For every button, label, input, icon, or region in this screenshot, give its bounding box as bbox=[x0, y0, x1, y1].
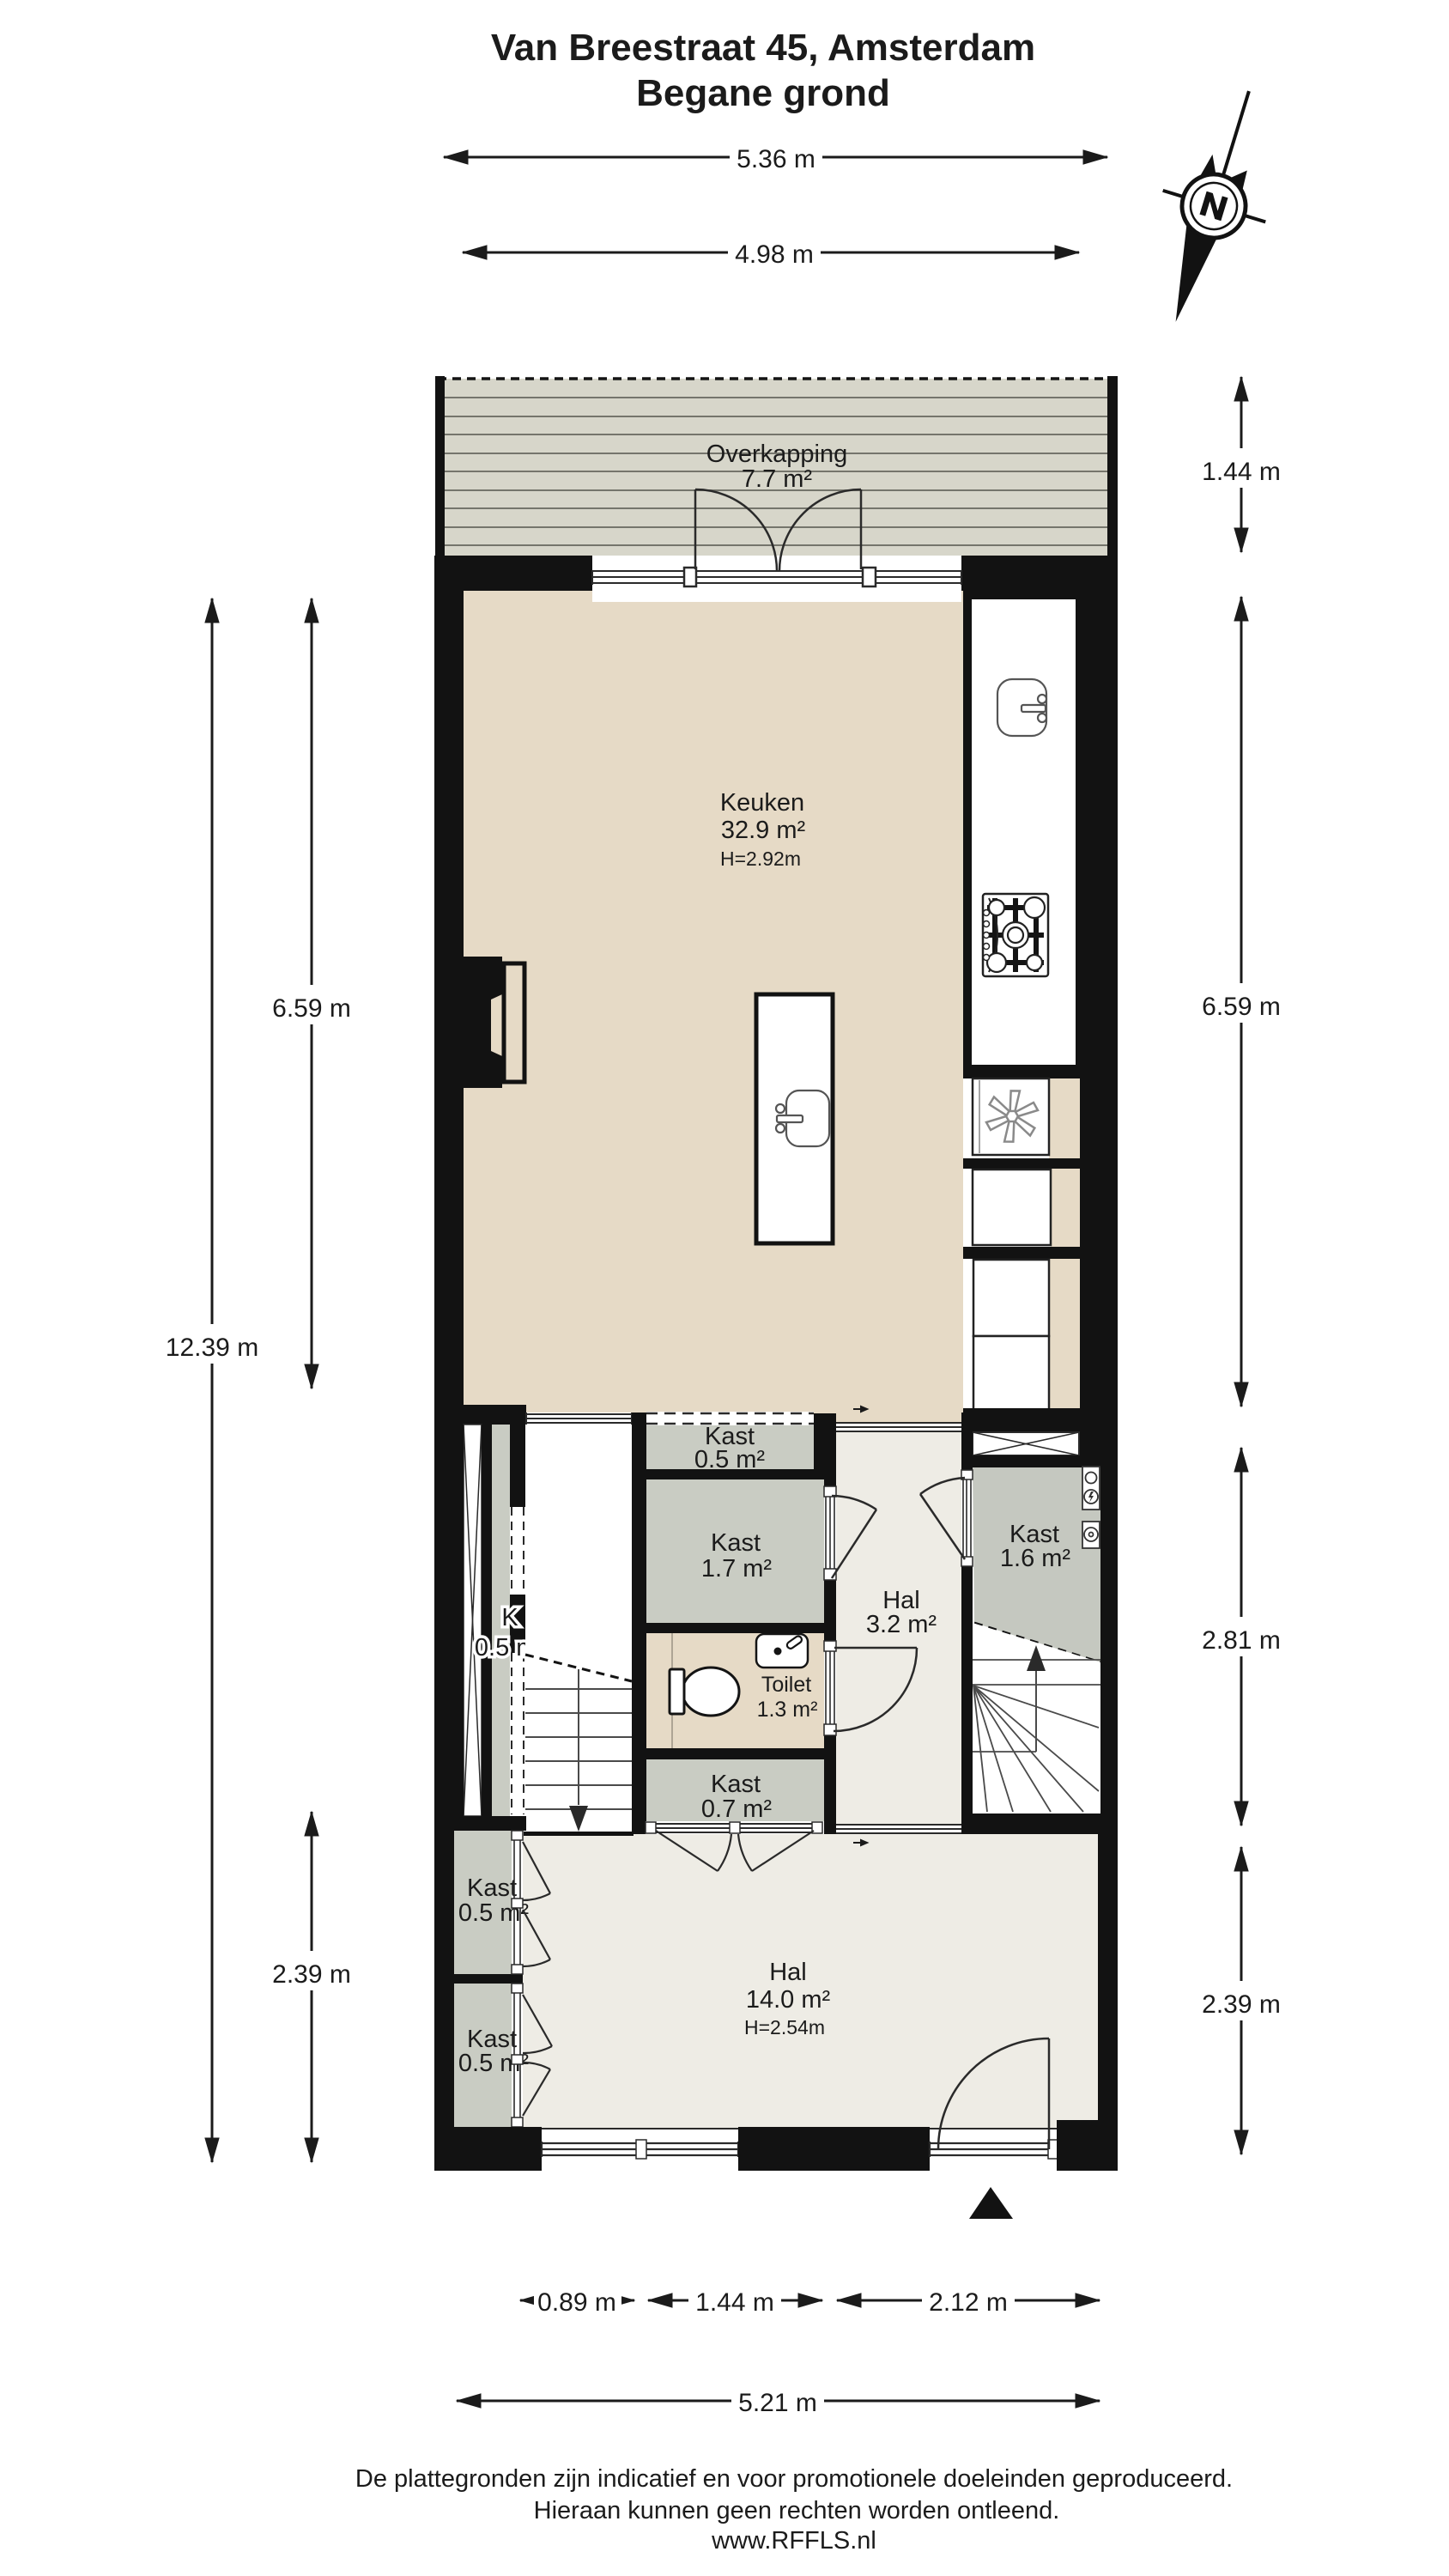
svg-text:2.39 m: 2.39 m bbox=[1202, 1990, 1281, 2019]
svg-text:1.7 m²: 1.7 m² bbox=[701, 1555, 773, 1583]
svg-text:K: K bbox=[501, 1604, 518, 1631]
svg-text:5.21 m: 5.21 m bbox=[738, 2389, 817, 2417]
svg-text:0.7 m²: 0.7 m² bbox=[701, 1795, 773, 1823]
svg-text:www.RFFLS.nl: www.RFFLS.nl bbox=[711, 2527, 876, 2555]
svg-text:Kast: Kast bbox=[467, 1874, 517, 1902]
svg-text:1.3 m²: 1.3 m² bbox=[757, 1698, 818, 1722]
svg-text:6.59 m: 6.59 m bbox=[272, 994, 351, 1023]
svg-text:14.0 m²: 14.0 m² bbox=[746, 1986, 831, 2014]
svg-text:32.9 m²: 32.9 m² bbox=[721, 817, 806, 844]
svg-text:1.6 m²: 1.6 m² bbox=[1000, 1545, 1071, 1572]
svg-text:2.81 m: 2.81 m bbox=[1202, 1626, 1281, 1655]
svg-text:5.36 m: 5.36 m bbox=[737, 145, 815, 173]
svg-text:1.44 m: 1.44 m bbox=[1202, 458, 1281, 486]
svg-text:H=2.92m: H=2.92m bbox=[720, 848, 801, 870]
svg-text:7.7 m²: 7.7 m² bbox=[742, 465, 813, 493]
svg-text:H=2.54m: H=2.54m bbox=[744, 2016, 825, 2038]
svg-text:Hal: Hal bbox=[769, 1959, 807, 1986]
svg-text:0.89 m: 0.89 m bbox=[537, 2288, 616, 2317]
svg-text:Toilet: Toilet bbox=[761, 1673, 811, 1697]
svg-text:2.39 m: 2.39 m bbox=[272, 1960, 351, 1989]
svg-text:Kast: Kast bbox=[711, 1529, 761, 1557]
svg-text:1.44 m: 1.44 m bbox=[695, 2288, 774, 2317]
svg-text:Hieraan kunnen geen rechten wo: Hieraan kunnen geen rechten worden ontle… bbox=[534, 2497, 1060, 2524]
svg-text:4.98 m: 4.98 m bbox=[735, 240, 814, 269]
svg-text:3.2 m²: 3.2 m² bbox=[866, 1611, 937, 1638]
svg-text:6.59 m: 6.59 m bbox=[1202, 993, 1281, 1021]
svg-text:2.12 m: 2.12 m bbox=[929, 2288, 1008, 2317]
svg-text:Overkapping: Overkapping bbox=[706, 440, 847, 468]
svg-text:Van Breestraat 45, Amsterdam: Van Breestraat 45, Amsterdam bbox=[491, 27, 1035, 69]
svg-text:Keuken: Keuken bbox=[720, 789, 804, 817]
svg-text:Begane grond: Begane grond bbox=[636, 72, 890, 114]
svg-text:De plattegronden zijn indicati: De plattegronden zijn indicatief en voor… bbox=[355, 2465, 1233, 2493]
svg-text:Kast: Kast bbox=[711, 1771, 761, 1798]
svg-text:12.39 m: 12.39 m bbox=[166, 1334, 258, 1362]
